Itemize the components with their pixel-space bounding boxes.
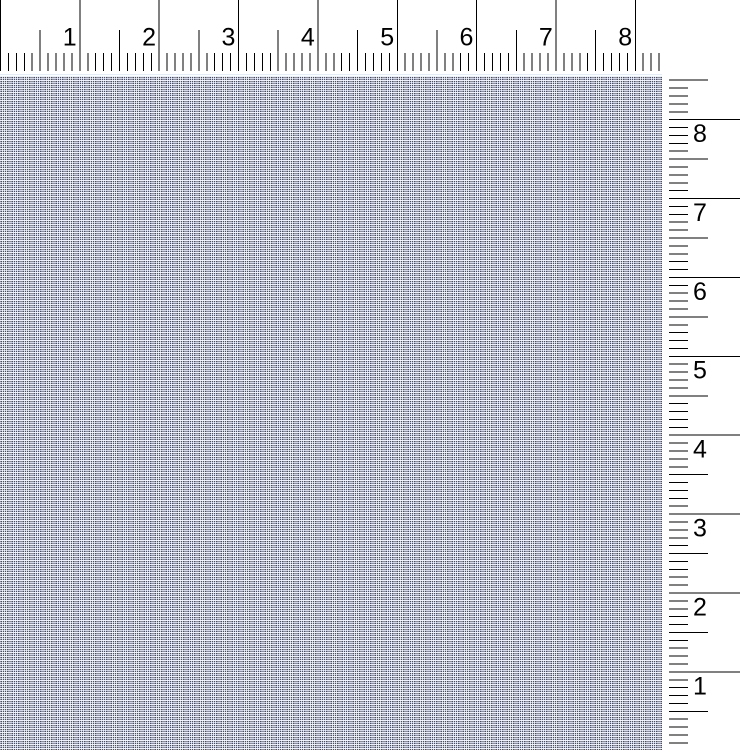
svg-text:8: 8 [693, 120, 707, 148]
svg-text:7: 7 [693, 199, 707, 227]
svg-text:4: 4 [301, 24, 315, 52]
svg-text:5: 5 [693, 357, 707, 385]
svg-text:6: 6 [460, 24, 474, 52]
svg-text:2: 2 [142, 24, 156, 52]
svg-text:3: 3 [693, 515, 707, 543]
svg-text:1: 1 [63, 24, 77, 52]
svg-text:2: 2 [693, 593, 707, 621]
svg-text:4: 4 [693, 436, 707, 464]
svg-text:8: 8 [618, 24, 632, 52]
svg-text:1: 1 [693, 672, 707, 700]
svg-text:7: 7 [539, 24, 553, 52]
svg-text:5: 5 [380, 24, 394, 52]
svg-text:6: 6 [693, 278, 707, 306]
svg-text:3: 3 [221, 24, 235, 52]
